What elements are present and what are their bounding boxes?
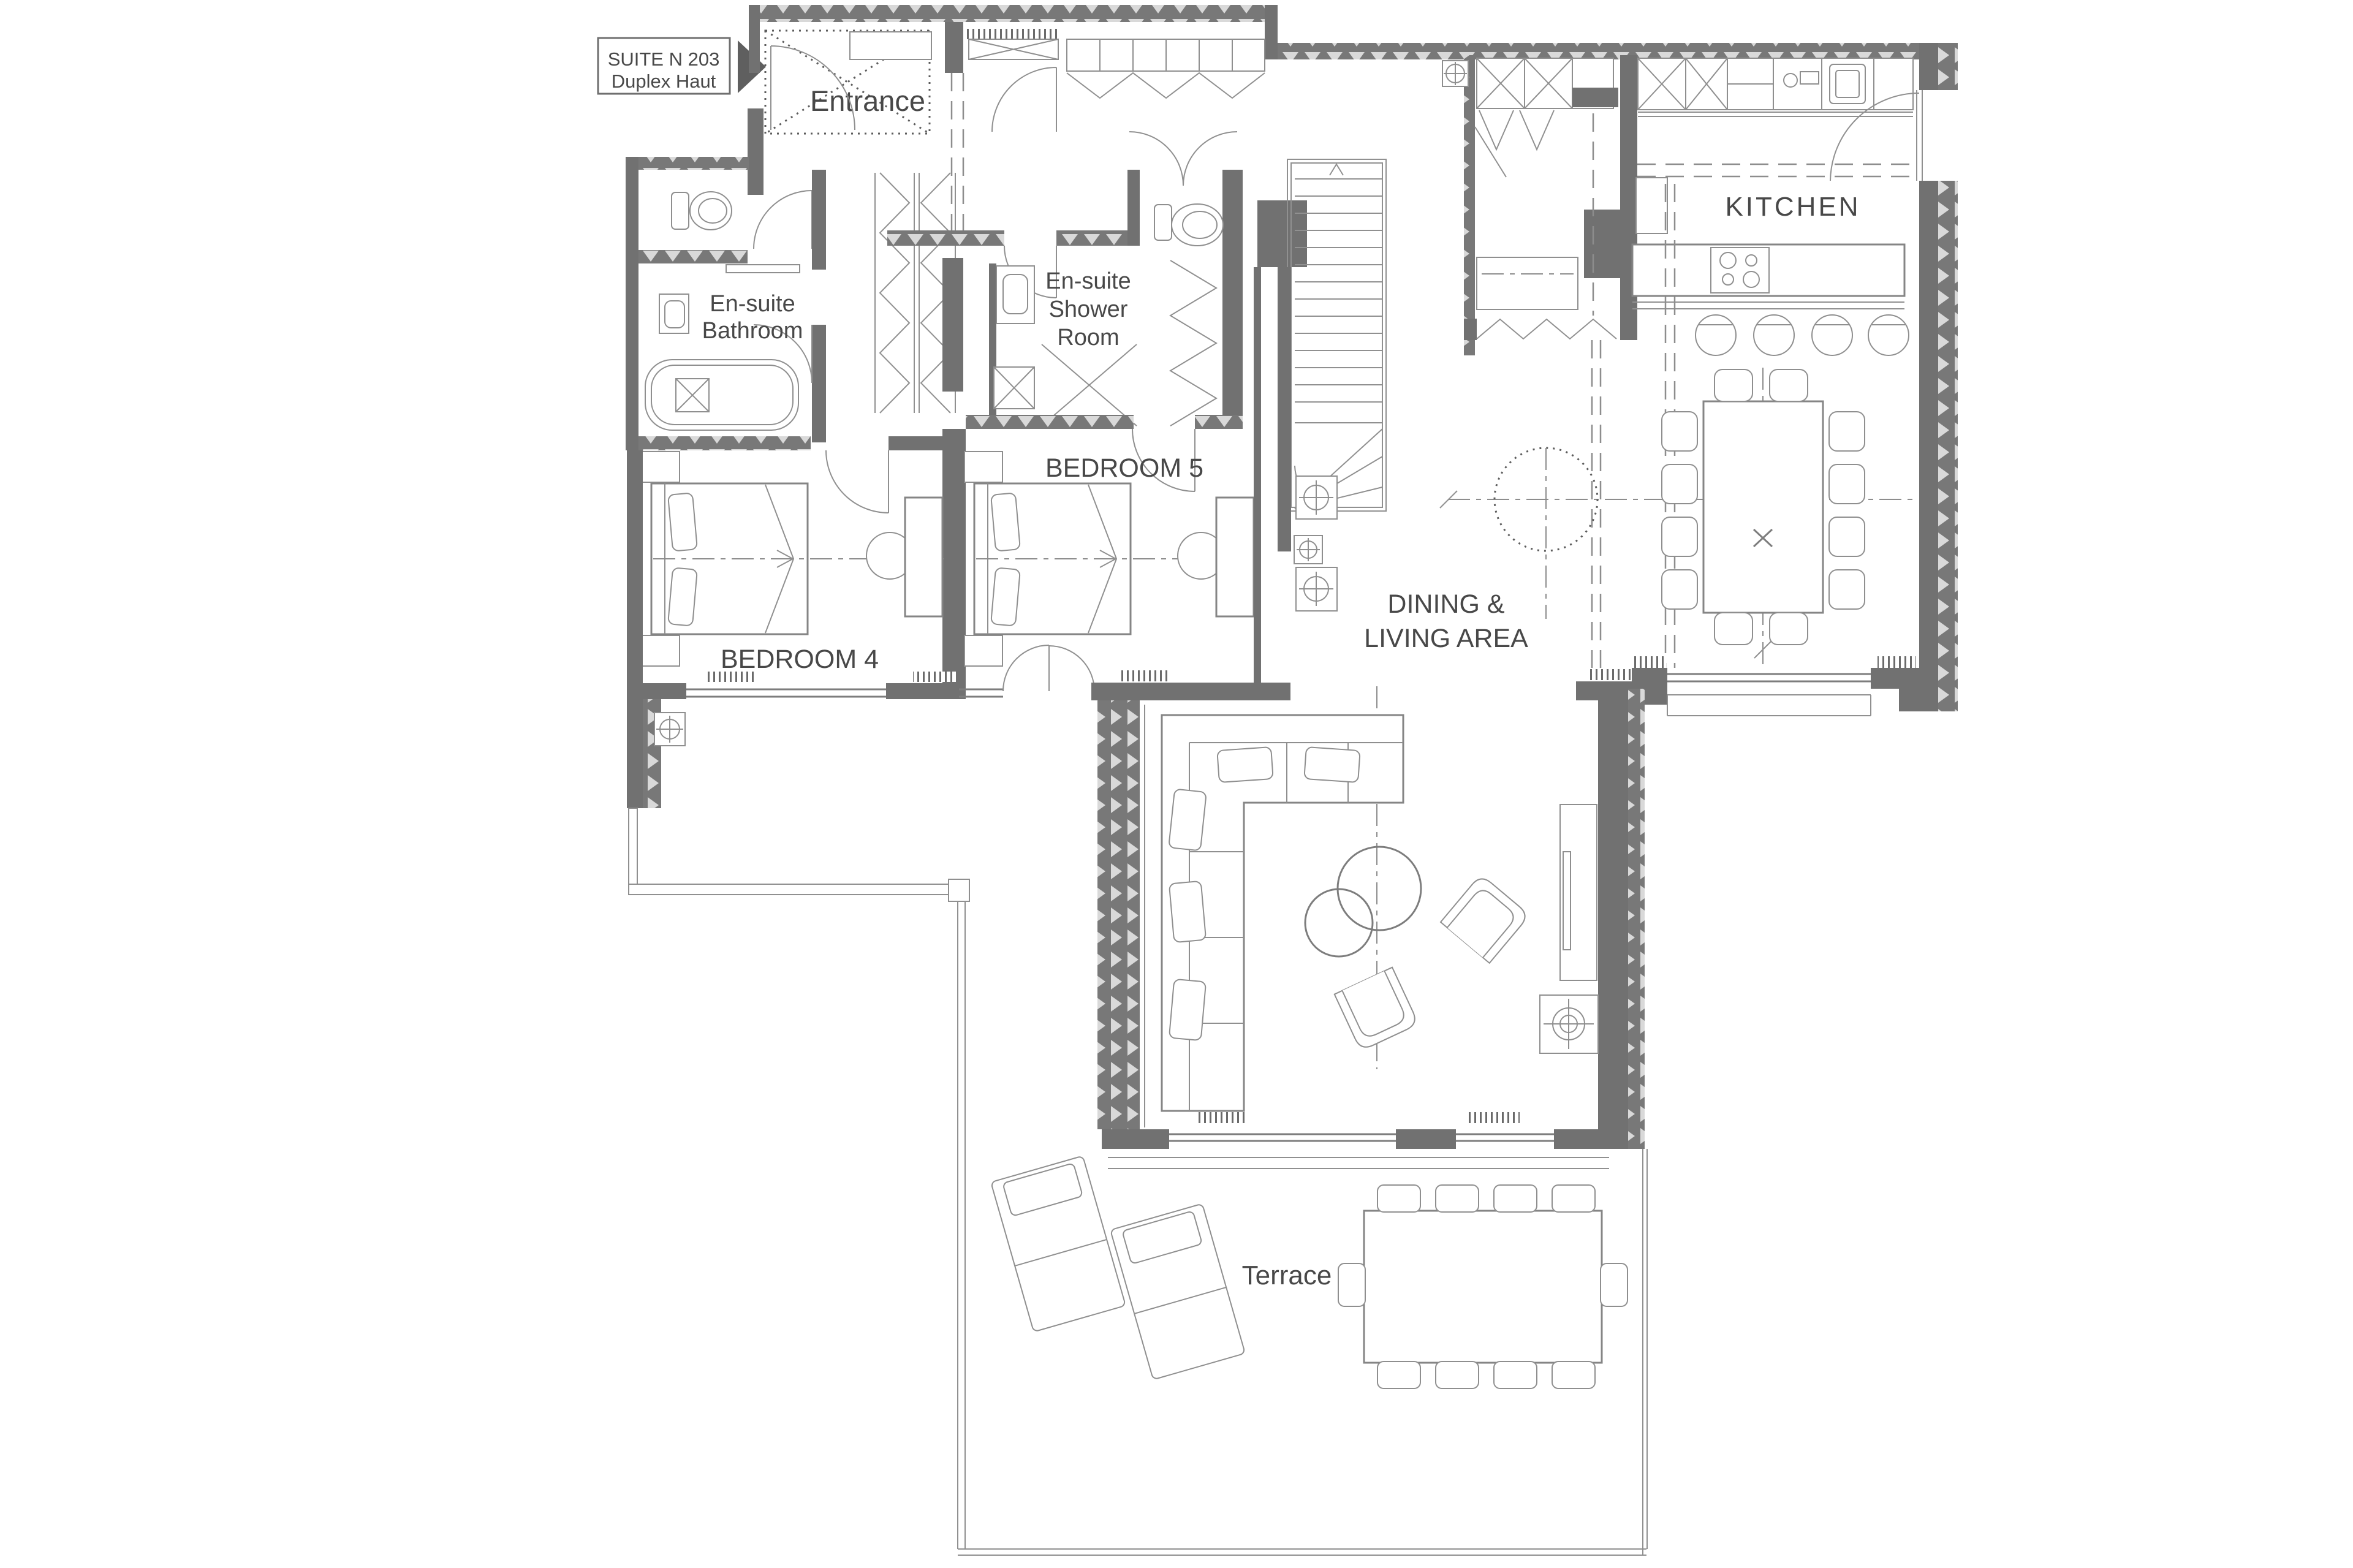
svg-text:SUITE N 203: SUITE N 203: [608, 48, 720, 70]
svg-text:KITCHEN: KITCHEN: [1725, 192, 1860, 222]
svg-text:LIVING AREA: LIVING AREA: [1364, 624, 1528, 653]
svg-text:Terrace: Terrace: [1242, 1260, 1332, 1290]
svg-text:Shower: Shower: [1049, 297, 1128, 322]
svg-text:BEDROOM 5: BEDROOM 5: [1045, 453, 1203, 483]
svg-text:Bathroom: Bathroom: [702, 318, 803, 344]
svg-text:En-suite: En-suite: [1045, 268, 1131, 294]
svg-text:Entrance: Entrance: [810, 85, 925, 117]
svg-text:BEDROOM 4: BEDROOM 4: [721, 645, 879, 674]
svg-text:DINING &: DINING &: [1387, 589, 1504, 619]
svg-text:En-suite: En-suite: [710, 291, 795, 317]
svg-text:Duplex Haut: Duplex Haut: [612, 70, 716, 92]
svg-text:Room: Room: [1057, 325, 1119, 350]
